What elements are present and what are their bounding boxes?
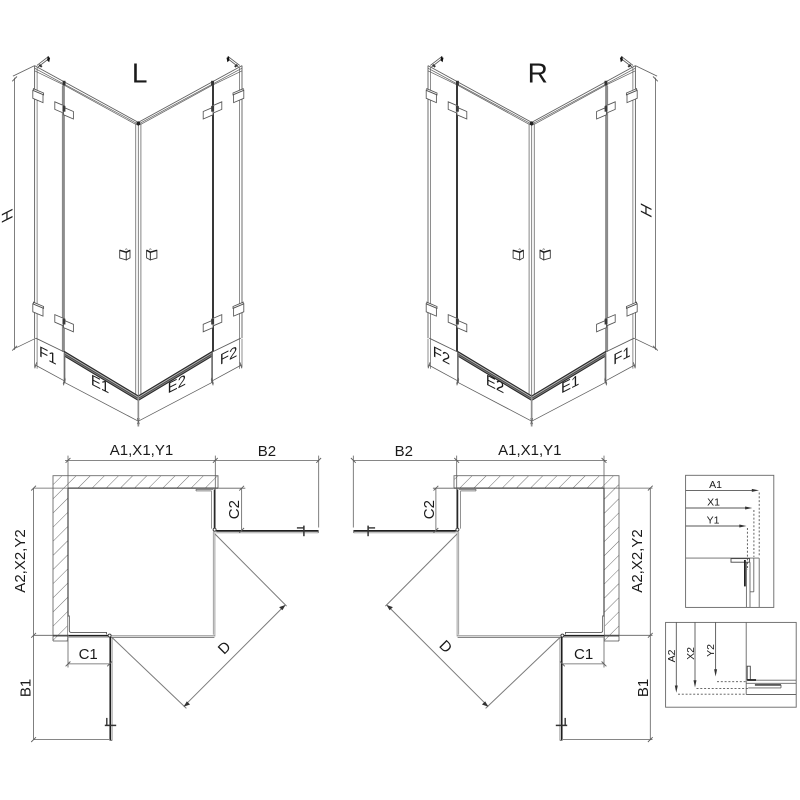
svg-text:B2: B2	[258, 443, 276, 460]
svg-text:A1,X1,Y1: A1,X1,Y1	[110, 442, 173, 459]
svg-text:B2: B2	[395, 443, 413, 460]
svg-text:R: R	[528, 58, 548, 89]
svg-text:L: L	[132, 58, 148, 89]
svg-text:A2: A2	[666, 649, 678, 662]
svg-text:B1: B1	[635, 679, 652, 697]
svg-text:Y1: Y1	[707, 515, 720, 527]
svg-text:C2: C2	[226, 500, 243, 519]
svg-text:C1: C1	[574, 646, 593, 663]
svg-text:A1,X1,Y1: A1,X1,Y1	[498, 442, 561, 459]
svg-text:C1: C1	[79, 646, 98, 663]
svg-text:A2,X2,Y2: A2,X2,Y2	[12, 529, 29, 592]
svg-text:C2: C2	[421, 500, 438, 519]
svg-text:Y2: Y2	[705, 644, 717, 657]
svg-text:A2,X2,Y2: A2,X2,Y2	[629, 529, 646, 592]
svg-text:X1: X1	[707, 497, 720, 509]
svg-text:B1: B1	[17, 679, 34, 697]
svg-text:X2: X2	[685, 647, 697, 660]
svg-text:A1: A1	[709, 479, 722, 491]
